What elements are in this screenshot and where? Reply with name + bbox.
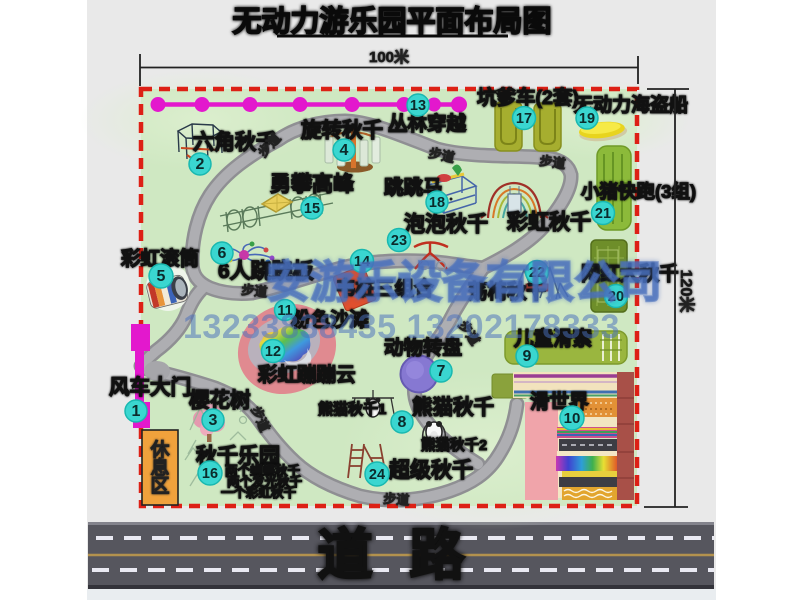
svg-text:24: 24 (369, 467, 385, 483)
svg-text:熊猫秋千2: 熊猫秋千2 (421, 436, 487, 454)
svg-text:4: 4 (340, 142, 349, 159)
svg-text:步道: 步道 (383, 491, 410, 508)
svg-text:16: 16 (202, 466, 218, 482)
svg-text:一个彩虹秋千: 一个彩虹秋千 (221, 485, 297, 500)
svg-text:21: 21 (595, 206, 611, 222)
svg-text:19: 19 (579, 111, 595, 127)
svg-text:小猪快跑(3组): 小猪快跑(3组) (581, 181, 696, 202)
svg-text:超级秋千: 超级秋千 (389, 458, 473, 482)
svg-text:丛林穿越: 丛林穿越 (388, 112, 467, 135)
svg-text:区: 区 (150, 476, 169, 497)
svg-text:勇攀高峰: 勇攀高峰 (270, 172, 354, 196)
svg-text:风车大门: 风车大门 (109, 375, 191, 399)
svg-text:彩虹秋千: 彩虹秋千 (506, 211, 591, 234)
svg-text:23: 23 (391, 233, 407, 249)
svg-text:5: 5 (157, 268, 166, 285)
svg-text:步道: 步道 (241, 282, 268, 300)
svg-text:120米: 120米 (677, 270, 696, 314)
svg-text:1: 1 (132, 403, 141, 420)
svg-text:17: 17 (516, 111, 532, 127)
svg-text:100米: 100米 (369, 48, 410, 66)
svg-text:8: 8 (398, 414, 407, 431)
svg-text:坑爹车(2套): 坑爹车(2套) (477, 86, 579, 109)
svg-text:10: 10 (564, 410, 581, 427)
svg-text:15: 15 (304, 201, 320, 217)
svg-text:9: 9 (523, 348, 532, 365)
svg-text:无动力游乐园平面布局图: 无动力游乐园平面布局图 (232, 5, 551, 38)
svg-text:13: 13 (410, 98, 426, 114)
svg-text:13233838435 13202178333: 13233838435 13202178333 (183, 308, 620, 346)
svg-text:2: 2 (196, 156, 205, 173)
svg-text:7: 7 (437, 363, 446, 380)
svg-text:路: 路 (409, 524, 465, 586)
svg-text:18: 18 (429, 195, 445, 211)
svg-text:3: 3 (209, 412, 218, 429)
svg-text:樱花树: 樱花树 (189, 388, 251, 412)
svg-text:安游乐设备有限公司: 安游乐设备有限公司 (266, 258, 662, 307)
svg-text:12: 12 (265, 344, 281, 360)
svg-text:道: 道 (317, 524, 372, 586)
svg-text:熊猫秋千1: 熊猫秋千1 (318, 400, 386, 418)
svg-text:旋转秋千: 旋转秋千 (300, 118, 383, 142)
svg-text:6: 6 (218, 245, 227, 262)
svg-text:彩虹蹦蹦云: 彩虹蹦蹦云 (257, 363, 356, 386)
svg-text:熊猫秋千: 熊猫秋千 (412, 395, 494, 419)
svg-text:泡泡秋千: 泡泡秋千 (404, 212, 488, 236)
